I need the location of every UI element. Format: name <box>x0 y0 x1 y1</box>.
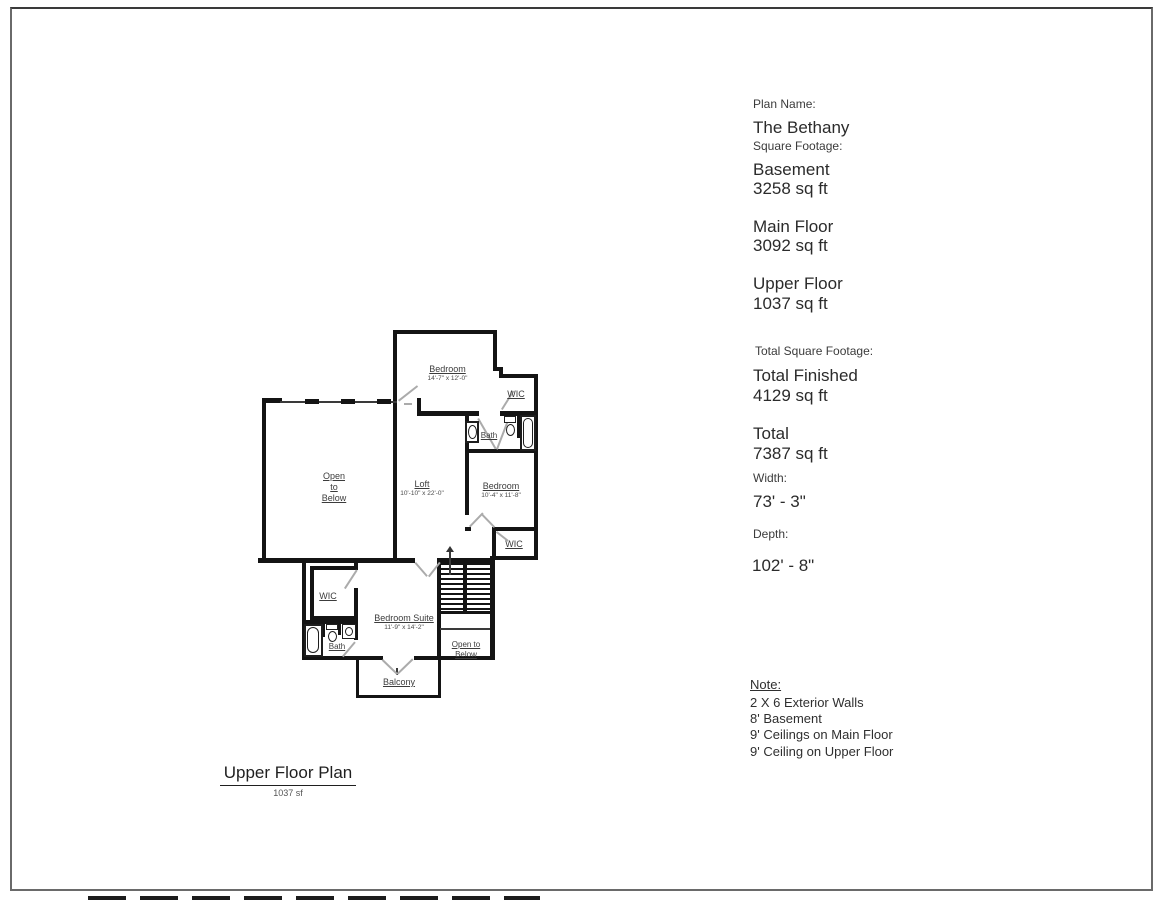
room-label-bath-left: Bath <box>324 642 350 652</box>
wall <box>417 398 421 415</box>
floor-name: Main Floor <box>753 217 833 237</box>
door-swing <box>404 403 412 405</box>
wall <box>393 330 497 334</box>
wall <box>534 374 538 560</box>
floor-name: Upper Floor <box>753 274 843 294</box>
room-label-open-to-below: Open to Below <box>310 471 358 504</box>
balcony-wall <box>438 660 441 698</box>
page-title-area: 1037 sf <box>200 788 376 798</box>
bathtub-basin <box>307 627 319 653</box>
toilet-fixture <box>504 416 516 423</box>
floor-name: Basement <box>753 160 830 180</box>
room-label-wic-left: WIC <box>312 591 344 602</box>
stair-direction-arrow <box>449 551 451 575</box>
toilet-fixture <box>326 624 338 630</box>
floor-area: 3258 sq ft <box>753 179 828 199</box>
depth-value: 102' - 8" <box>752 556 814 576</box>
toilet-bowl <box>328 631 337 642</box>
total-name: Total <box>753 424 789 444</box>
plan-name-label: Plan Name: <box>753 97 816 111</box>
stair-divider <box>463 563 467 613</box>
total-square-footage-label: Total Square Footage: <box>755 344 873 358</box>
drawing-title-block: Upper Floor Plan 1037 sf <box>200 763 376 798</box>
note-item: 9' Ceiling on Upper Floor <box>750 744 893 759</box>
wall <box>417 411 479 416</box>
wall <box>495 527 538 531</box>
wall <box>492 556 538 560</box>
note-title: Note: <box>750 677 781 692</box>
floor-area: 3092 sq ft <box>753 236 828 256</box>
width-value: 73' - 3" <box>753 492 806 512</box>
total-name: Total Finished <box>753 366 858 386</box>
wall <box>258 558 415 563</box>
width-label: Width: <box>753 471 787 485</box>
note-item: 8' Basement <box>750 711 822 726</box>
total-area: 4129 sq ft <box>753 386 828 406</box>
square-footage-label: Square Footage: <box>753 139 842 153</box>
balcony-wall <box>356 695 441 698</box>
railing-post <box>341 399 355 404</box>
staircase <box>467 563 490 613</box>
page-title: Upper Floor Plan <box>220 763 357 786</box>
sink-basin <box>468 425 477 439</box>
note-item: 9' Ceilings on Main Floor <box>750 727 893 742</box>
wall <box>465 527 471 531</box>
stair-edge <box>441 611 490 614</box>
wall <box>493 330 497 370</box>
note-item: 2 X 6 Exterior Walls <box>750 695 864 710</box>
stair-arrow-head <box>446 546 454 552</box>
room-label-stair-well: Open to Below <box>442 640 490 660</box>
wall <box>262 398 266 562</box>
wall <box>358 656 383 660</box>
balcony-wall <box>356 660 359 698</box>
room-label-bedroom-suite: Bedroom Suite 11'-9" x 14'-2" <box>360 613 448 632</box>
room-label-loft: Loft 10'-10" x 22'-0" <box>396 479 448 498</box>
railing-post <box>377 399 391 404</box>
wall <box>310 616 358 620</box>
depth-label: Depth: <box>753 527 788 541</box>
sink-basin <box>345 627 353 636</box>
wall <box>338 624 341 635</box>
bathtub-basin <box>523 418 533 448</box>
plan-name-value: The Bethany <box>753 118 849 138</box>
wall <box>393 330 397 562</box>
room-label-wic-top: WIC <box>500 389 532 400</box>
railing-post <box>305 399 319 404</box>
room-label-bath-top: Bath <box>477 431 501 441</box>
wall <box>490 556 495 660</box>
floor-area: 1037 sq ft <box>753 294 828 314</box>
toilet-bowl <box>506 424 515 436</box>
total-area: 7387 sq ft <box>753 444 828 464</box>
room-label-bedroom-top: Bedroom 14'-7" x 12'-0" <box>415 364 480 383</box>
room-label-bedroom-right: Bedroom 10'-4" x 11'-8" <box>470 481 532 500</box>
room-label-wic-right: WIC <box>498 539 530 550</box>
room-label-balcony: Balcony <box>370 677 428 688</box>
wall <box>499 374 538 378</box>
staircase <box>441 563 463 613</box>
cut-off-content-dashes <box>88 896 540 900</box>
wall <box>310 566 358 570</box>
page-border <box>10 7 1153 891</box>
